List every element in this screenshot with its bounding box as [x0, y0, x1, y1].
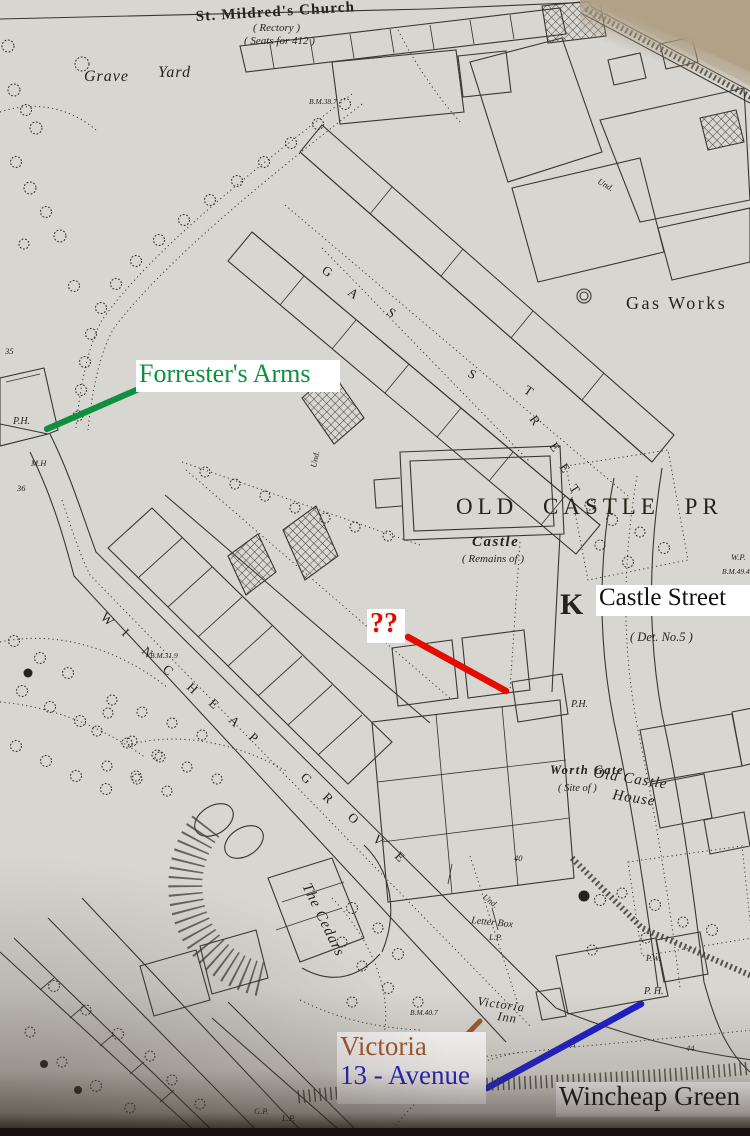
annotation-castle-street: Castle Street	[596, 585, 750, 616]
label-gothic-k: K	[560, 588, 584, 621]
label-und-3: Und.	[481, 892, 500, 910]
gas-works-yards	[470, 37, 750, 303]
label-bm-387: B.M.38.7	[309, 97, 337, 106]
label-gas-works: Gas Works	[626, 293, 727, 313]
label-wincheap-letter: A	[226, 712, 244, 730]
label-wp: W.P.	[731, 552, 746, 562]
map-photo: St. Mildred's Church ( Rectory ) ( Seats…	[0, 0, 750, 1136]
label-gas-street-letter: S	[466, 366, 480, 383]
label-wincheap-letter: P	[246, 729, 262, 745]
letterbox-area	[448, 856, 520, 1010]
label-castle: Castle	[472, 534, 519, 550]
label-gas-street-letter: S	[384, 304, 399, 320]
castle-south-buildings	[372, 534, 574, 902]
label-old-castle-precincts: OLD CASTLE PR	[456, 494, 723, 519]
the-cedars	[132, 739, 420, 1034]
label-old-castle-house-1: Old Castle	[592, 765, 668, 792]
label-lp: L.P.	[488, 932, 502, 942]
label-gas-street-letter: A	[345, 284, 362, 302]
victoria-inn-buildings	[536, 932, 708, 1020]
label-yard: Yard	[158, 64, 191, 81]
crosshatch-buildings	[228, 372, 364, 595]
label-grove-letter: G	[298, 769, 315, 786]
bottom-left-terraces	[0, 898, 362, 1136]
annotation-wincheap-green: Wincheap Green	[556, 1082, 750, 1117]
label-und-1: Und.	[308, 450, 321, 468]
query-pointer-line	[408, 637, 506, 691]
label-plot-40: 40	[514, 853, 523, 863]
annotation-victoria-avenue: Victoria 13 - Avenue	[337, 1032, 486, 1104]
label-grove-letter: O	[345, 809, 362, 826]
label-gas-street-letter: G	[319, 262, 335, 280]
label-bm-494: B.M.49.4	[722, 567, 750, 576]
label-grove-letter: E	[392, 848, 408, 864]
left-ph-block	[0, 368, 58, 446]
label-wincheap-letter: H	[184, 679, 201, 696]
label-rectory: ( Rectory )	[253, 22, 300, 34]
label-wincheap-letter: W	[98, 609, 118, 629]
label-plot-35: 35	[4, 346, 14, 356]
label-bm-319: B.M.31.9	[150, 651, 178, 660]
label-ph-castle-street: P.H.	[570, 699, 588, 710]
label-det-no5: ( Det. No.5 )	[630, 630, 693, 644]
label-gas-street-letter: T	[521, 382, 536, 399]
label-seats: ( Seats for 412 )	[244, 35, 315, 47]
label-pw: P.W.	[645, 953, 661, 963]
label-mh: M.H	[30, 458, 47, 468]
annotation-13-avenue: 13 - Avenue	[340, 1061, 483, 1090]
annotation-forresters-arms: Forrester's Arms	[136, 360, 340, 392]
annotation-query-marks: ??	[367, 609, 405, 643]
annotation-victoria: Victoria	[340, 1032, 483, 1061]
label-grove-letter: V	[370, 831, 388, 849]
label-plot-44: 44	[686, 1043, 695, 1053]
label-wincheap-letter: C	[160, 661, 177, 678]
label-wincheap-letter: E	[206, 695, 222, 711]
forresters-arms-pointer-line	[47, 388, 141, 429]
label-bm-407: B.M.40.7	[410, 1008, 438, 1017]
label-site-of: ( Site of )	[558, 783, 597, 794]
label-gas-street-letter: R	[527, 412, 544, 428]
label-grave: Grave	[84, 68, 129, 85]
ordnance-map: St. Mildred's Church ( Rectory ) ( Seats…	[0, 0, 750, 1136]
trees	[2, 40, 718, 1113]
label-plot-36: 36	[16, 483, 26, 493]
map-labels: St. Mildred's Church ( Rectory ) ( Seats…	[4, 0, 750, 1123]
label-ph-wincheap-green: P. H.	[643, 986, 664, 997]
label-gp: G.P.	[254, 1106, 269, 1116]
label-und-2: Und.	[596, 176, 616, 193]
label-letter-box: Letter Box	[470, 915, 514, 930]
label-lp-2: L.P.	[281, 1113, 295, 1123]
label-gas-street-letter: E	[547, 439, 564, 454]
label-gas-street-letter: E	[557, 460, 574, 475]
old-castle-house-buildings	[572, 708, 750, 976]
map-linework	[0, 0, 750, 1136]
label-ph-left: P.H.	[12, 416, 30, 427]
label-grove-letter: R	[320, 789, 337, 806]
label-remains-of: ( Remains of )	[462, 553, 524, 565]
label-victoria-inn-2: Inn	[496, 1009, 518, 1026]
